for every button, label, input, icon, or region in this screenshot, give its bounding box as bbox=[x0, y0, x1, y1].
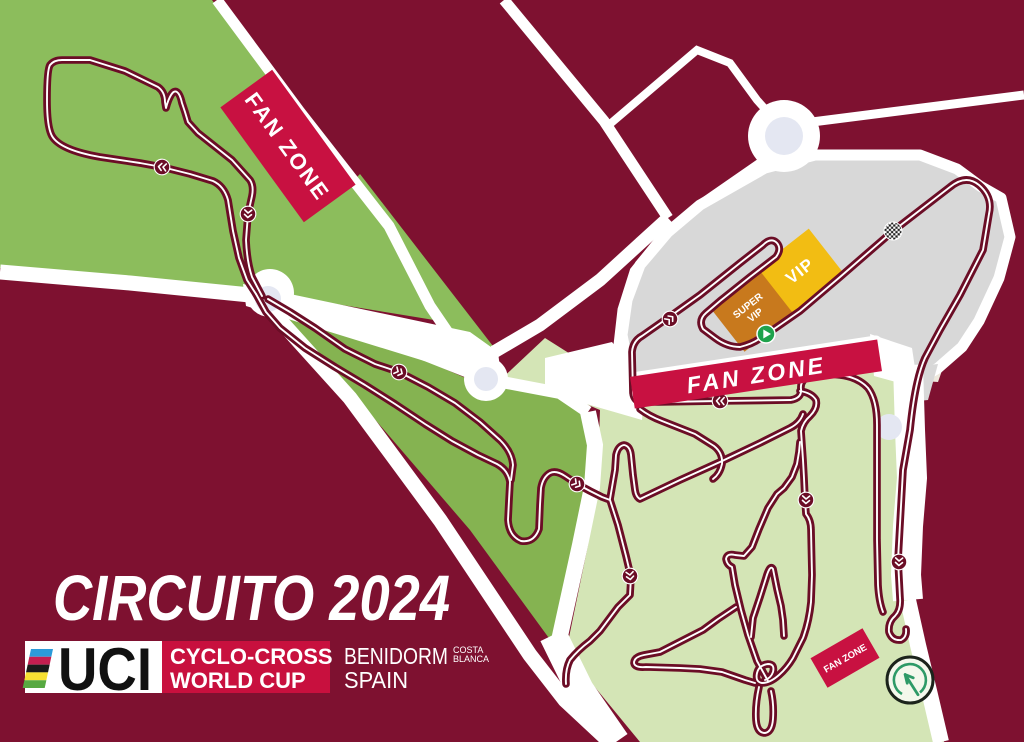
svg-text:SPAIN: SPAIN bbox=[344, 667, 408, 693]
svg-text:UCI: UCI bbox=[58, 636, 152, 703]
svg-text:WORLD CUP: WORLD CUP bbox=[170, 668, 306, 693]
svg-text:CYCLO-CROSS: CYCLO-CROSS bbox=[170, 644, 333, 669]
svg-text:CIRCUITO 2024: CIRCUITO 2024 bbox=[53, 562, 450, 634]
svg-text:BENIDORM: BENIDORM bbox=[344, 643, 448, 669]
svg-text:BLANCA: BLANCA bbox=[453, 654, 489, 664]
